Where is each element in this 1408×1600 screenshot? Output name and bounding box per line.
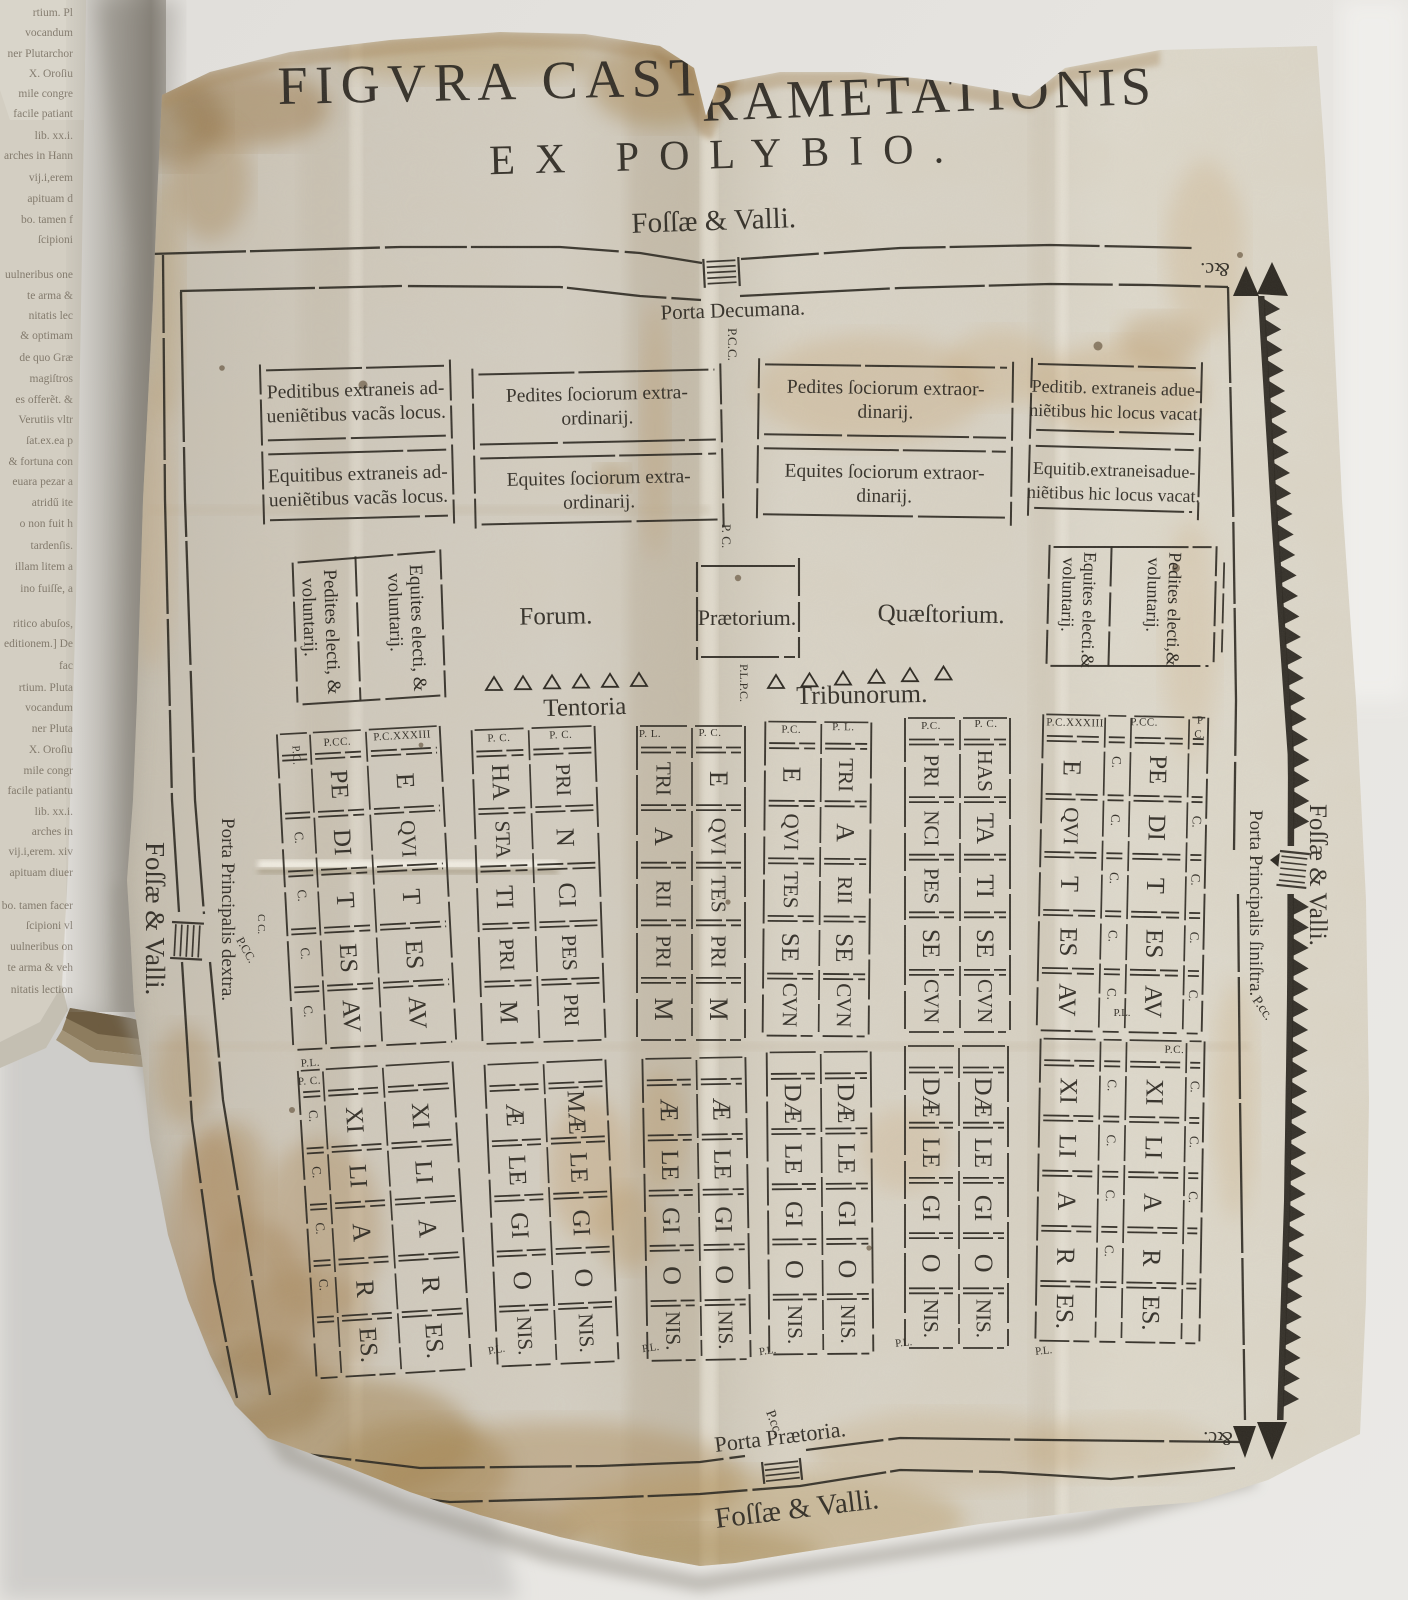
svg-text:nitatis lection: nitatis lection	[11, 984, 74, 996]
svg-text:ner Plutarchor: ner Plutarchor	[8, 48, 74, 60]
svg-text:arches in Hann: arches in Hann	[4, 150, 73, 162]
svg-text:bo. tamen facer: bo. tamen facer	[2, 900, 73, 912]
svg-text:facile patiantu: facile patiantu	[8, 785, 74, 797]
svg-text:vocandum: vocandum	[25, 27, 73, 39]
svg-text:ritico abuſos,: ritico abuſos,	[13, 618, 73, 630]
svg-text:ino fuiſſe, a: ino fuiſſe, a	[20, 583, 73, 595]
svg-text:Verutiis vltr: Verutiis vltr	[18, 414, 73, 426]
svg-text:de quo Græ: de quo Græ	[19, 352, 73, 364]
svg-text:illam litem a: illam litem a	[15, 561, 73, 573]
svg-text:apituam diuer: apituam diuer	[9, 867, 73, 879]
svg-text:facile patiant: facile patiant	[13, 108, 74, 120]
svg-text:uulneribus on: uulneribus on	[10, 941, 73, 953]
svg-text:te arma & veh: te arma & veh	[8, 962, 74, 974]
svg-text:euara pezar a: euara pezar a	[12, 476, 73, 488]
svg-text:rtium. Pluta: rtium. Pluta	[19, 682, 73, 694]
svg-text:mile congr: mile congr	[24, 765, 74, 777]
svg-text:uulneribus one: uulneribus one	[5, 269, 73, 281]
svg-text:ſcipioni vl: ſcipioni vl	[26, 920, 73, 932]
svg-text:editionem.] De: editionem.] De	[4, 638, 73, 650]
svg-text:& fortuna con: & fortuna con	[8, 456, 73, 468]
svg-text:o non fuit h: o non fuit h	[20, 518, 74, 530]
svg-text:& optimam: & optimam	[20, 330, 73, 342]
svg-text:es offerẽt. &: es offerẽt. &	[15, 394, 73, 406]
svg-text:vocandum: vocandum	[25, 702, 73, 714]
svg-text:vij.i,erem. xiv: vij.i,erem. xiv	[8, 846, 73, 858]
svg-text:mile congre: mile congre	[18, 88, 73, 100]
svg-text:bo. tamen f: bo. tamen f	[21, 214, 73, 226]
